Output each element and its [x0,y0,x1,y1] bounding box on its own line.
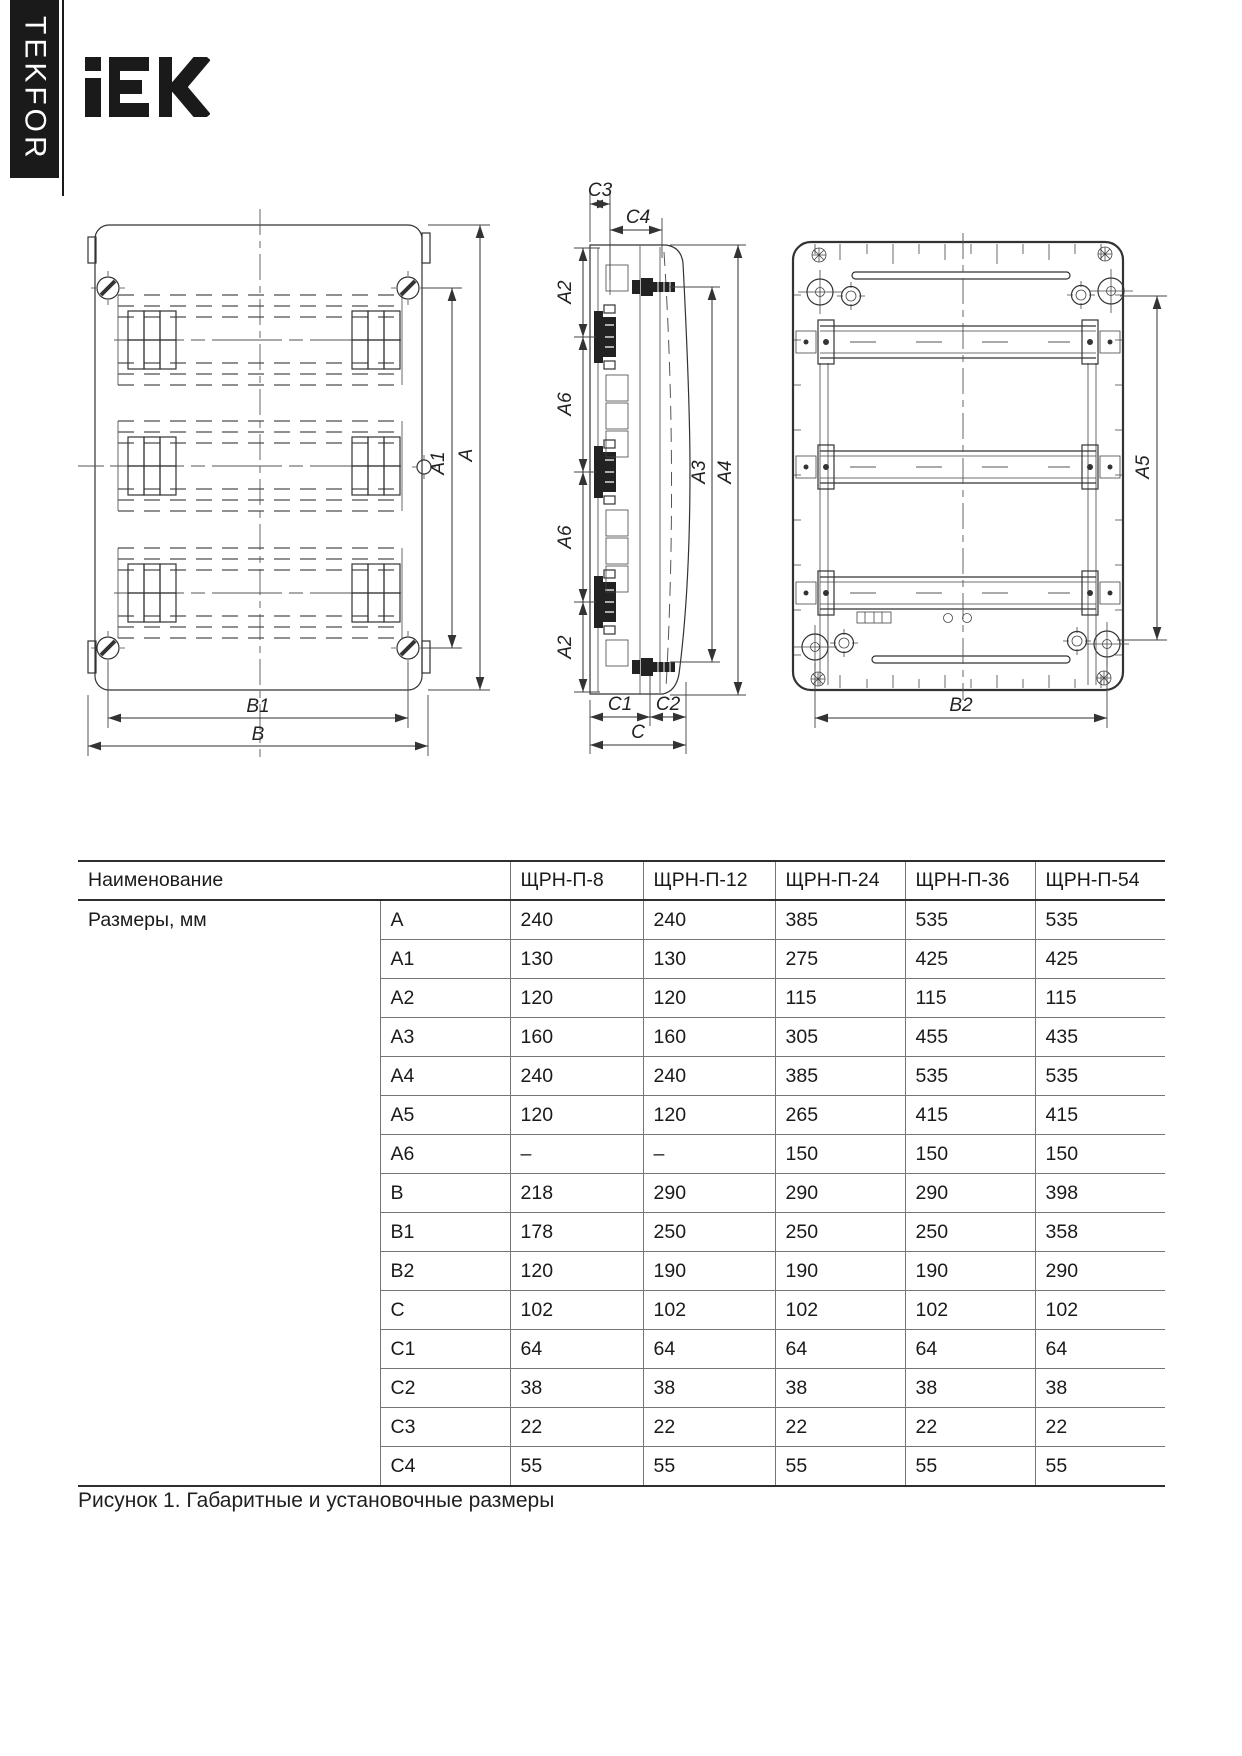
dim-value-cell: 385 [775,1057,905,1096]
dim-value-cell: 240 [510,900,643,940]
dim-value-cell: 535 [905,1057,1035,1096]
din-rail-profile [594,265,628,666]
dim-value-cell: 290 [775,1174,905,1213]
dim-name-cell: A [380,900,510,940]
dim-name-cell: A2 [380,979,510,1018]
certification-marks-icon [857,612,972,623]
dim-label-a5: A5 [1133,455,1154,480]
col-header-model: ЩРН-П-12 [643,861,775,900]
dim-value-cell: – [643,1135,775,1174]
dim-label-b1: B1 [246,696,269,717]
dim-value-cell: 535 [905,900,1035,940]
dim-label-a6-lower: A6 [555,525,576,550]
iek-logo-icon [85,57,210,117]
dim-value-cell: 55 [775,1447,905,1487]
dim-value-cell: 190 [775,1252,905,1291]
dim-value-cell: 358 [1035,1213,1165,1252]
corner-screw-icon [91,271,425,665]
dim-value-cell: 38 [775,1369,905,1408]
dim-value-cell: 115 [905,979,1035,1018]
dim-value-cell: 250 [905,1213,1035,1252]
dim-label-c4: C4 [626,207,650,228]
dim-value-cell: 102 [1035,1291,1165,1330]
dim-name-cell: B1 [380,1213,510,1252]
dim-name-cell: A4 [380,1057,510,1096]
dim-label-a: A [456,449,477,463]
dim-value-cell: 150 [775,1135,905,1174]
dim-value-cell: 120 [510,1252,643,1291]
dim-value-cell: 265 [775,1096,905,1135]
dim-value-cell: 240 [643,900,775,940]
dim-value-cell: 55 [643,1447,775,1487]
dim-value-cell: 535 [1035,1057,1165,1096]
dim-value-cell: 535 [1035,900,1165,940]
dim-value-cell: 64 [905,1330,1035,1369]
dim-value-cell: 435 [1035,1018,1165,1057]
dimensions-table-body: Размеры, ммA240240385535535A113013027542… [78,900,1165,1486]
dim-value-cell: 250 [775,1213,905,1252]
table-row: Размеры, ммA240240385535535 [78,900,1165,940]
dimensions-table: Наименование ЩРН-П-8ЩРН-П-12ЩРН-П-24ЩРН-… [78,860,1165,1487]
dim-label-a3: A3 [689,460,710,485]
dim-value-cell: 22 [510,1408,643,1447]
dim-value-cell: 455 [905,1018,1035,1057]
dimensions-table-wrap: Наименование ЩРН-П-8ЩРН-П-12ЩРН-П-24ЩРН-… [78,860,1165,1487]
dim-value-cell: 425 [1035,940,1165,979]
dim-value-cell: 290 [643,1174,775,1213]
dim-value-cell: 190 [643,1252,775,1291]
dim-name-cell: A1 [380,940,510,979]
dim-value-cell: 425 [905,940,1035,979]
dim-label-a1: A1 [428,451,449,475]
dim-label-c1: C1 [608,694,632,715]
front-view-drawing: A1 A B1 B [70,205,490,765]
brand-tab-label: TEKFOR [18,16,52,162]
dim-value-cell: 22 [905,1408,1035,1447]
dim-value-cell: 102 [905,1291,1035,1330]
dim-value-cell: 398 [1035,1174,1165,1213]
page: TEKFOR [0,0,1242,1756]
rail-support-columns [820,363,1096,685]
figure-caption: Рисунок 1. Габаритные и установочные раз… [78,1489,554,1513]
dim-value-cell: 115 [775,979,905,1018]
dim-label-b: B [252,724,265,745]
dim-label-a2-top: A2 [555,280,576,305]
dim-label-a2-bottom: A2 [555,635,576,660]
dim-value-cell: 190 [905,1252,1035,1291]
vent-slot [872,656,1070,663]
dim-value-cell: 38 [643,1369,775,1408]
dim-name-cell: C [380,1291,510,1330]
dim-value-cell: 275 [775,940,905,979]
dim-value-cell: 160 [510,1018,643,1057]
dim-name-cell: A3 [380,1018,510,1057]
dim-label-b2: B2 [949,695,973,716]
edge-tick-marks [794,244,1122,688]
back-view-drawing: B2 A5 [720,195,1185,740]
dim-value-cell: 102 [775,1291,905,1330]
enclosure-back-outline [793,242,1123,690]
dim-value-cell: 385 [775,900,905,940]
din-rails [796,320,1120,615]
vent-slot [852,272,1070,279]
dim-value-cell: 115 [1035,979,1165,1018]
dim-label-c: C [631,722,645,743]
dim-value-cell: 178 [510,1213,643,1252]
dim-value-cell: 55 [1035,1447,1165,1487]
dim-value-cell: 38 [905,1369,1035,1408]
dim-value-cell: 250 [643,1213,775,1252]
dim-value-cell: 218 [510,1174,643,1213]
dim-value-cell: 120 [510,979,643,1018]
brand-tab: TEKFOR [10,0,59,178]
dim-value-cell: 160 [643,1018,775,1057]
front-dimensions: A1 A B1 B [88,225,490,756]
dim-value-cell: 150 [1035,1135,1165,1174]
dim-name-cell: B [380,1174,510,1213]
dim-value-cell: 38 [1035,1369,1165,1408]
dim-value-cell: 150 [905,1135,1035,1174]
dim-value-cell: 120 [510,1096,643,1135]
dim-label-c3: C3 [588,180,613,201]
dim-value-cell: 22 [643,1408,775,1447]
dim-value-cell: 290 [1035,1252,1165,1291]
col-header-model: ЩРН-П-8 [510,861,643,900]
row-group-label: Размеры, мм [78,900,380,1486]
dim-value-cell: 120 [643,979,775,1018]
dim-value-cell: 415 [905,1096,1035,1135]
dim-name-cell: C2 [380,1369,510,1408]
dim-value-cell: 55 [510,1447,643,1487]
dim-value-cell: 22 [775,1408,905,1447]
dim-value-cell: – [510,1135,643,1174]
dim-name-cell: A5 [380,1096,510,1135]
dim-value-cell: 120 [643,1096,775,1135]
dim-value-cell: 55 [905,1447,1035,1487]
col-header-model: ЩРН-П-54 [1035,861,1165,900]
dim-value-cell: 102 [643,1291,775,1330]
dim-value-cell: 64 [775,1330,905,1369]
dim-value-cell: 102 [510,1291,643,1330]
hinge-icon [632,658,675,676]
dim-value-cell: 38 [510,1369,643,1408]
dim-value-cell: 415 [1035,1096,1165,1135]
hinge-icon [632,278,675,296]
dim-value-cell: 130 [510,940,643,979]
col-header-name: Наименование [78,861,510,900]
dim-label-a6-upper: A6 [555,392,576,417]
col-header-model: ЩРН-П-36 [905,861,1035,900]
dim-value-cell: 130 [643,940,775,979]
dim-name-cell: B2 [380,1252,510,1291]
dim-value-cell: 64 [1035,1330,1165,1369]
dim-name-cell: A6 [380,1135,510,1174]
dim-value-cell: 305 [775,1018,905,1057]
dim-name-cell: C1 [380,1330,510,1369]
table-header-row: Наименование ЩРН-П-8ЩРН-П-12ЩРН-П-24ЩРН-… [78,861,1165,900]
dim-name-cell: C4 [380,1447,510,1487]
dim-value-cell: 240 [510,1057,643,1096]
col-header-model: ЩРН-П-24 [775,861,905,900]
dim-label-c2: C2 [656,694,681,715]
dim-value-cell: 22 [1035,1408,1165,1447]
dim-value-cell: 64 [643,1330,775,1369]
dim-value-cell: 64 [510,1330,643,1369]
dim-value-cell: 240 [643,1057,775,1096]
dim-name-cell: C3 [380,1408,510,1447]
brand-rule [62,0,64,196]
dim-value-cell: 290 [905,1174,1035,1213]
